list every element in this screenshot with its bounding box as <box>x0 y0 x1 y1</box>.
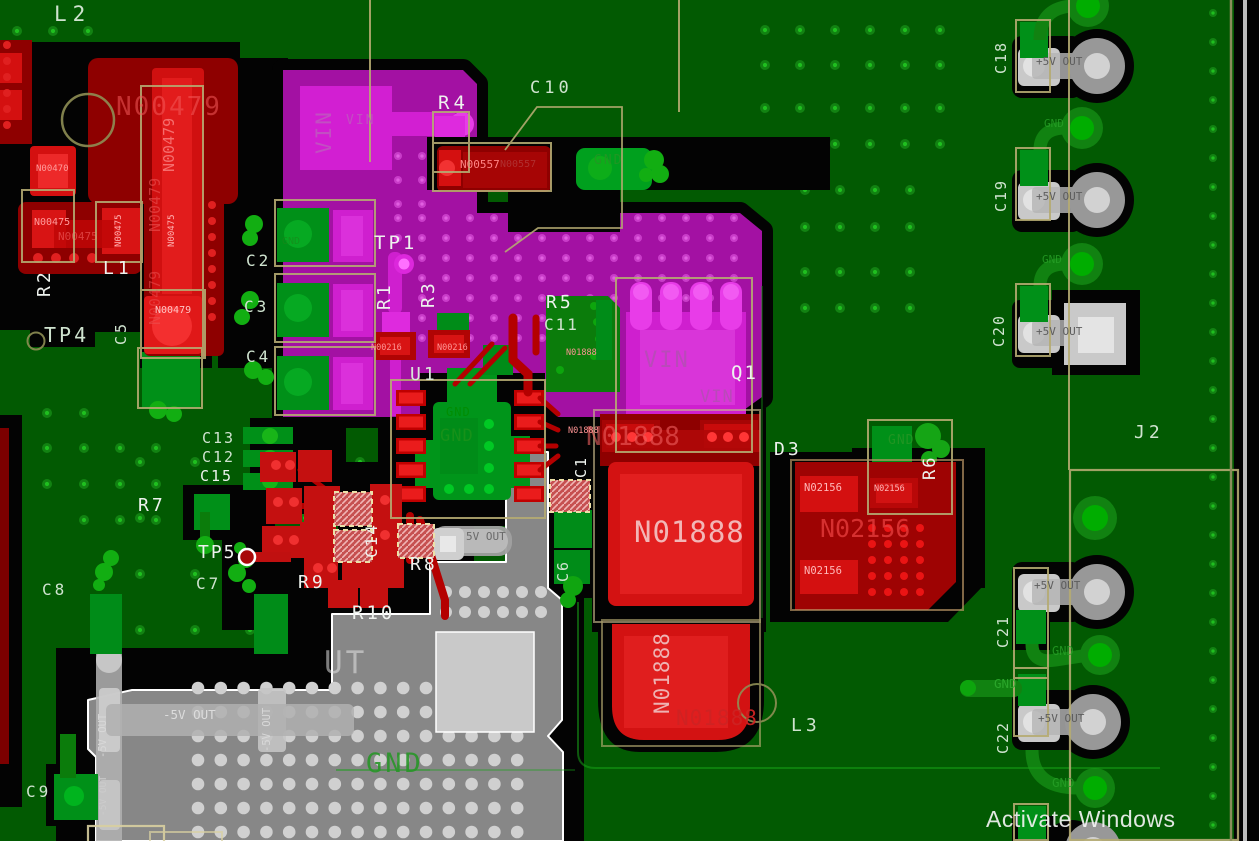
pcb-layout-canvas[interactable]: L2N00479N00479N00479N00479N00479N00470N0… <box>0 0 1259 841</box>
pcb-artwork <box>0 0 1259 841</box>
tp5-pad <box>239 549 255 565</box>
